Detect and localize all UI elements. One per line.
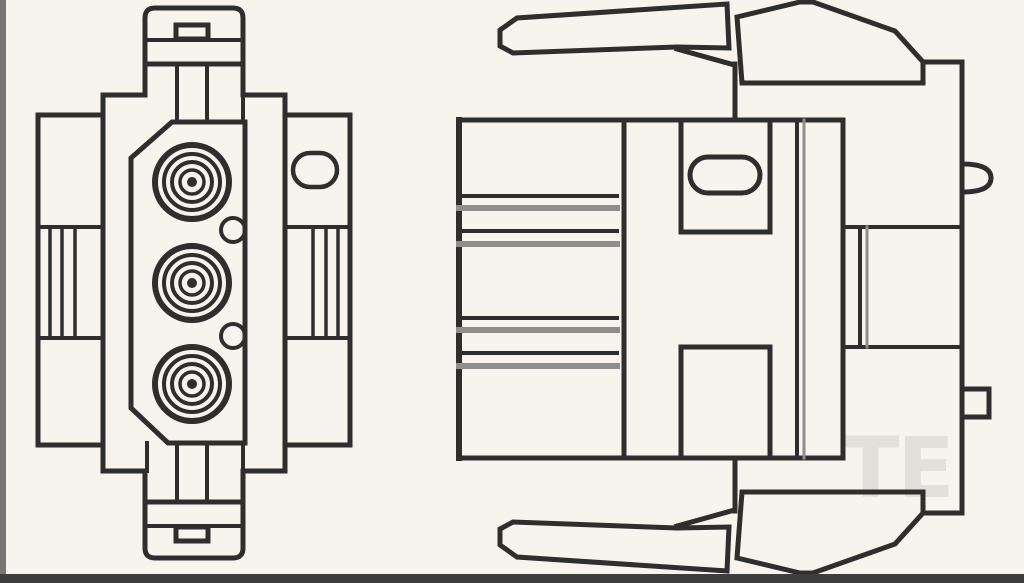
- mounting-wing-left: [38, 115, 103, 445]
- bottom-polarization-key: [145, 443, 243, 558]
- retention-bump-square: [962, 389, 989, 417]
- latch-shelf-bottom: [677, 511, 731, 526]
- front-view: [38, 8, 350, 558]
- key-slot-top: [176, 25, 208, 39]
- contact-cavity-2: [155, 246, 229, 320]
- retention-bump-round: [962, 164, 991, 192]
- connector-technical-drawing: TE: [0, 0, 1024, 583]
- left-frame-bar: [0, 0, 6, 583]
- oval-window: [690, 157, 760, 193]
- latch-arm-bottom: [500, 458, 735, 571]
- housing-body: [459, 120, 843, 458]
- top-polarization-key: [145, 8, 243, 122]
- contact-cavity-3: [155, 347, 229, 421]
- wire-seal-ribs-upper: [459, 196, 617, 244]
- te-watermark: TE: [842, 419, 953, 517]
- latch-catch-top: [737, 2, 923, 83]
- latch-shelf-top: [677, 49, 731, 64]
- keying-notch-1: [221, 218, 245, 242]
- drawing-canvas: TE: [0, 0, 1024, 583]
- oval-slot: [293, 153, 337, 187]
- rear-column: [843, 227, 962, 347]
- bottom-frame-bar: [0, 574, 1024, 583]
- latch-arm-top: [500, 4, 735, 120]
- key-slot-bottom: [176, 527, 208, 541]
- contact-cavity-1: [155, 145, 229, 219]
- mounting-wing-right: [285, 115, 350, 445]
- keying-notch-2: [221, 324, 245, 348]
- wire-seal-ribs-lower: [459, 318, 617, 366]
- lower-recess-plate: [681, 347, 770, 458]
- side-view: TE: [459, 2, 991, 573]
- oval-window-plate: [681, 120, 770, 232]
